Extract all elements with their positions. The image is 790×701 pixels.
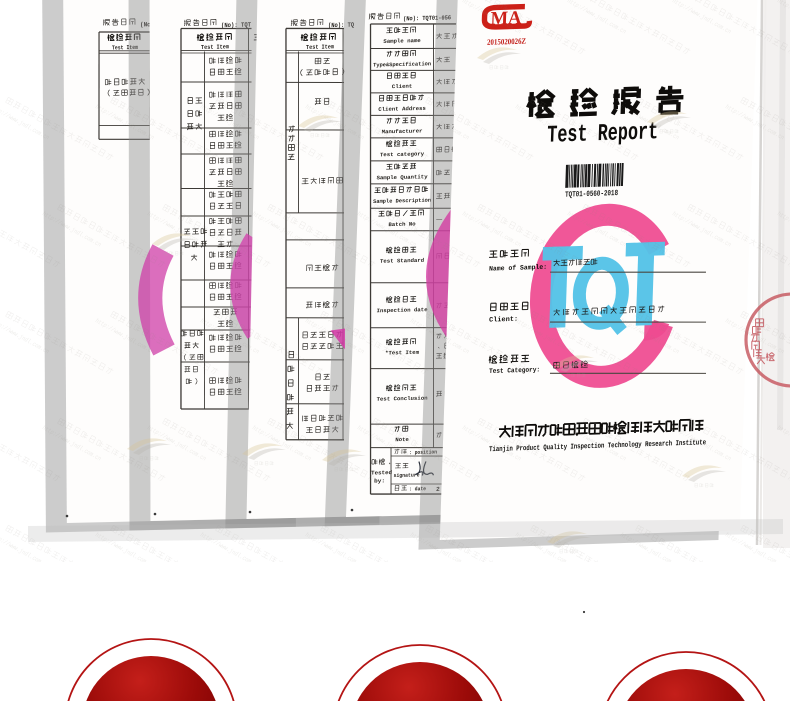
svg-text:2015020026Z: 2015020026Z [487, 37, 527, 47]
svg-text:TQT01-0560-2018: TQT01-0560-2018 [565, 189, 618, 200]
svg-text:Inspection date: Inspection date [376, 307, 427, 314]
svg-text:Manufacturer: Manufacturer [382, 128, 423, 135]
svg-text:Sample name: Sample name [383, 38, 421, 45]
svg-text:Sample Quantity: Sample Quantity [376, 174, 428, 181]
svg-text:by:: by: [374, 477, 385, 484]
svg-text:Test Item: Test Item [306, 43, 334, 51]
svg-text:Note: Note [395, 437, 409, 443]
svg-text:Test Standard: Test Standard [380, 258, 424, 265]
svg-text:Batch No: Batch No [388, 221, 415, 228]
svg-text:signature: signature [393, 472, 419, 479]
svg-text:Test Category:: Test Category: [489, 366, 540, 376]
svg-text:Test Item: Test Item [201, 43, 229, 51]
svg-text:Client: Client [392, 84, 413, 90]
svg-text:Test Conclusion: Test Conclusion [376, 396, 427, 403]
